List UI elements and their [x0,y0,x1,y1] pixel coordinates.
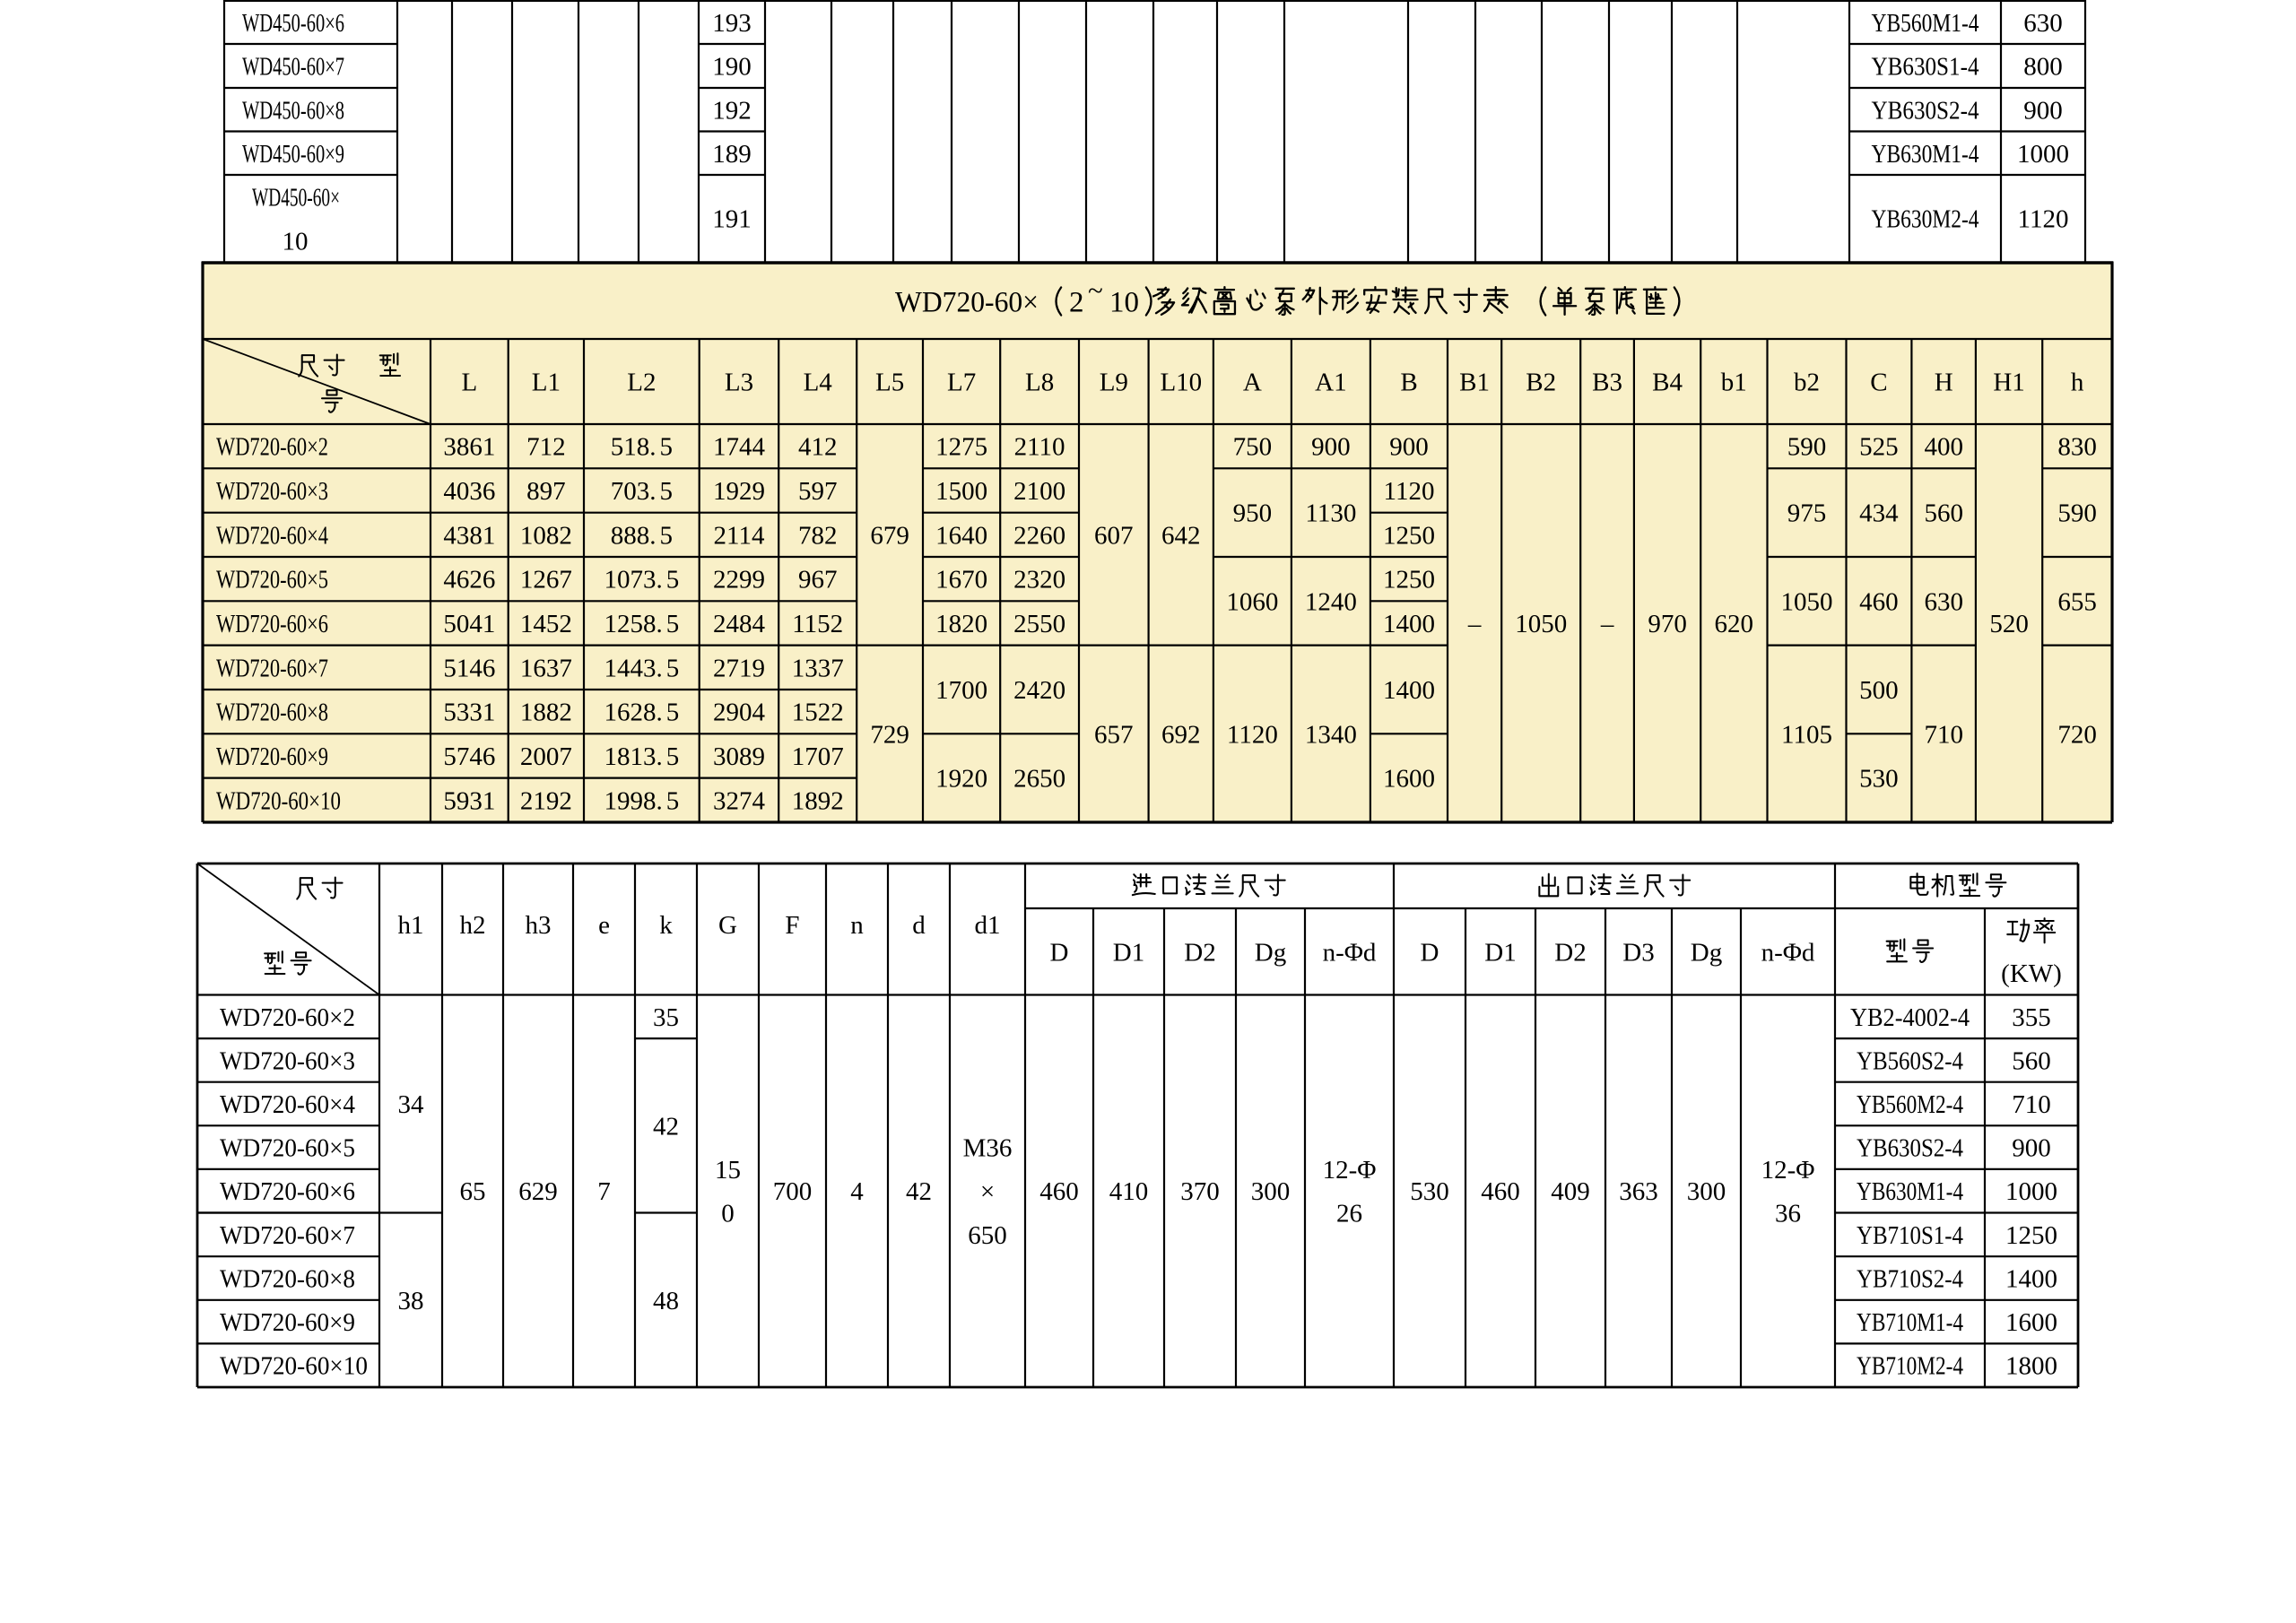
svg-text:1120: 1120 [1384,477,1435,506]
svg-text:L1: L1 [532,369,561,397]
svg-text:1060: 1060 [1226,587,1278,616]
svg-text:1120: 1120 [2018,205,2069,234]
svg-text:950: 950 [1233,499,1273,528]
svg-text:1670: 1670 [935,566,987,595]
svg-text:34: 34 [398,1090,425,1119]
svg-text:1522: 1522 [792,699,844,727]
svg-text:h: h [2071,369,2084,397]
svg-text:1707: 1707 [792,742,844,771]
svg-text:WD450-60×6: WD450-60×6 [242,9,344,38]
svg-text:WD720-60×3: WD720-60×3 [220,1046,355,1075]
svg-text:YB560M1-4: YB560M1-4 [1872,9,1979,38]
svg-text:WD450-60×7: WD450-60×7 [242,53,344,82]
svg-text:597: 597 [798,477,838,506]
svg-text:900: 900 [1389,433,1429,462]
svg-text:B2: B2 [1526,369,1556,397]
svg-text:1337: 1337 [792,654,844,682]
svg-text:35: 35 [653,1003,679,1032]
svg-text:530: 530 [1859,765,1899,794]
svg-text:2007: 2007 [520,742,572,771]
svg-text:2484: 2484 [713,610,766,638]
svg-text:d1: d1 [975,911,1001,940]
svg-text:1929: 1929 [713,477,765,506]
svg-text:C: C [1870,369,1887,397]
svg-text:1250: 1250 [1383,566,1435,595]
svg-text:2719: 2719 [713,654,765,682]
svg-text:L7: L7 [947,369,976,397]
svg-text:3274: 3274 [713,786,766,815]
svg-text:12-Φ: 12-Φ [1761,1156,1815,1185]
svg-text:1628.5: 1628.5 [604,699,680,727]
svg-text:4381: 4381 [443,521,495,550]
svg-text:h2: h2 [460,911,486,940]
svg-text:WD720-60×8: WD720-60×8 [216,699,328,727]
svg-text:42: 42 [906,1177,932,1206]
svg-text:L: L [462,369,478,397]
svg-text:1600: 1600 [2005,1308,2057,1337]
svg-text:n-Φd: n-Φd [1761,938,1815,967]
svg-text:1998.5: 1998.5 [604,786,680,815]
svg-text:D: D [1421,938,1439,967]
svg-text:2650: 2650 [1013,765,1065,794]
svg-text:WD720-60×4: WD720-60×4 [216,521,328,550]
svg-text:1920: 1920 [935,765,987,794]
svg-text:L2: L2 [627,369,656,397]
svg-text:970: 970 [1648,610,1687,638]
svg-text:YB710S2-4: YB710S2-4 [1857,1265,1963,1294]
svg-text:12-Φ: 12-Φ [1323,1156,1377,1185]
svg-text:WD450-60×: WD450-60× [252,184,340,213]
svg-text:n-Φd: n-Φd [1323,938,1377,967]
svg-text:YB630M1-4: YB630M1-4 [1857,1177,1963,1206]
svg-text:1400: 1400 [1383,676,1435,705]
svg-text:1267: 1267 [520,566,572,595]
svg-text:189: 189 [712,140,752,169]
svg-text:642: 642 [1161,521,1201,550]
svg-text:1882: 1882 [520,699,572,727]
svg-text:679: 679 [870,521,909,550]
svg-text:15: 15 [715,1156,741,1185]
svg-text:WD720-60×: WD720-60× [895,287,1039,319]
svg-text:3861: 3861 [443,433,495,462]
svg-text:B: B [1400,369,1417,397]
svg-text:42: 42 [653,1112,679,1141]
svg-text:(KW): (KW) [2001,959,2062,988]
svg-text:YB710S1-4: YB710S1-4 [1857,1221,1963,1250]
svg-text:WD720-60×8: WD720-60×8 [220,1265,355,1294]
svg-text:WD720-60×4: WD720-60×4 [220,1090,355,1119]
svg-text:1000: 1000 [2017,140,2069,169]
svg-text:657: 657 [1094,720,1134,749]
svg-text:3089: 3089 [713,742,765,771]
svg-text:630: 630 [2023,9,2063,38]
svg-text:629: 629 [518,1177,558,1206]
svg-text:d: d [912,911,926,940]
svg-text:D1: D1 [1484,938,1516,967]
svg-text:D2: D2 [1184,938,1215,967]
svg-text:WD720-60×6: WD720-60×6 [216,610,328,638]
svg-text:WD450-60×9: WD450-60×9 [242,140,344,169]
svg-text:2320: 2320 [1013,566,1065,595]
svg-text:193: 193 [712,9,752,38]
svg-text:WD720-60×2: WD720-60×2 [216,433,328,462]
svg-text:720: 720 [2057,720,2097,749]
svg-text:412: 412 [798,433,838,462]
svg-text:967: 967 [798,566,838,595]
svg-text:YB630S1-4: YB630S1-4 [1872,53,1979,82]
svg-text:1400: 1400 [1383,610,1435,638]
svg-text:1340: 1340 [1305,720,1357,749]
svg-text:WD720-60×10: WD720-60×10 [220,1352,368,1381]
svg-text:~: ~ [1088,274,1103,306]
svg-text:607: 607 [1094,521,1134,550]
svg-text:782: 782 [798,521,838,550]
svg-text:1258.5: 1258.5 [604,610,680,638]
svg-text:2299: 2299 [713,566,765,595]
svg-text:1744: 1744 [713,433,766,462]
svg-text:b2: b2 [1794,369,1820,397]
svg-text:460: 460 [1039,1177,1079,1206]
svg-text:1240: 1240 [1305,587,1357,616]
svg-text:H1: H1 [1993,369,2024,397]
svg-text:363: 363 [1619,1177,1658,1206]
svg-text:1700: 1700 [935,676,987,705]
svg-text:n: n [850,911,864,940]
svg-text:1637: 1637 [520,654,572,682]
svg-text:L3: L3 [725,369,753,397]
svg-text:B1: B1 [1459,369,1490,397]
svg-text:1105: 1105 [1781,720,1832,749]
svg-text:1050: 1050 [1781,587,1833,616]
svg-text:192: 192 [712,96,752,125]
svg-text:h1: h1 [398,911,424,940]
svg-text:500: 500 [1859,676,1899,705]
svg-text:525: 525 [1859,433,1899,462]
svg-text:191: 191 [712,205,752,234]
svg-text:1892: 1892 [792,786,844,815]
svg-text:L4: L4 [804,369,833,397]
svg-text:D2: D2 [1554,938,1586,967]
svg-text:370: 370 [1180,1177,1220,1206]
svg-text:G: G [718,911,737,940]
svg-text:YB630S2-4: YB630S2-4 [1857,1134,1963,1163]
svg-text:L8: L8 [1025,369,1054,397]
svg-text:1400: 1400 [2005,1265,2057,1294]
svg-text:WD720-60×7: WD720-60×7 [220,1221,355,1250]
svg-text:800: 800 [2023,53,2063,82]
svg-text:YB710M2-4: YB710M2-4 [1857,1352,1963,1381]
svg-text:1275: 1275 [935,433,987,462]
svg-text:460: 460 [1481,1177,1520,1206]
svg-text:1600: 1600 [1383,765,1435,794]
svg-text:2904: 2904 [713,699,766,727]
svg-text:888.5: 888.5 [611,521,673,550]
svg-text:YB630M1-4: YB630M1-4 [1872,140,1979,169]
svg-text:5331: 5331 [443,699,495,727]
svg-text:2260: 2260 [1013,521,1065,550]
svg-text:WD720-60×2: WD720-60×2 [220,1003,355,1032]
svg-text:WD720-60×9: WD720-60×9 [220,1308,355,1337]
svg-text:WD720-60×6: WD720-60×6 [220,1177,355,1206]
svg-text:1813.5: 1813.5 [604,742,680,771]
svg-text:2: 2 [1069,287,1084,319]
svg-text:300: 300 [1687,1177,1726,1206]
svg-text:2550: 2550 [1013,610,1065,638]
svg-text:26: 26 [1336,1200,1362,1228]
svg-text:Dg: Dg [1691,938,1722,967]
svg-text:460: 460 [1859,587,1899,616]
svg-text:1452: 1452 [520,610,572,638]
svg-text:A1: A1 [1315,369,1346,397]
svg-text:WD720-60×9: WD720-60×9 [216,742,328,771]
svg-text:1152: 1152 [792,610,843,638]
svg-text:A: A [1243,369,1262,397]
svg-text:692: 692 [1161,720,1201,749]
svg-text:5041: 5041 [443,610,495,638]
svg-text:630: 630 [1924,587,1963,616]
svg-text:400: 400 [1924,433,1963,462]
svg-text:k: k [659,911,673,940]
svg-text:4036: 4036 [443,477,495,506]
svg-text:700: 700 [773,1177,813,1206]
svg-text:YB630S2-4: YB630S2-4 [1872,96,1979,125]
svg-text:975: 975 [1787,499,1827,528]
svg-text:620: 620 [1715,610,1754,638]
svg-text:897: 897 [526,477,566,506]
svg-text:1082: 1082 [520,521,572,550]
svg-text:1250: 1250 [1383,521,1435,550]
svg-text:WD720-60×7: WD720-60×7 [216,654,328,682]
svg-text:1443.5: 1443.5 [604,654,680,682]
svg-text:1120: 1120 [1227,720,1278,749]
svg-text:B3: B3 [1592,369,1622,397]
svg-text:65: 65 [460,1177,486,1206]
svg-text:4626: 4626 [443,566,495,595]
svg-text:900: 900 [2012,1134,2051,1163]
svg-text:729: 729 [870,720,909,749]
svg-text:e: e [598,911,610,940]
svg-text:410: 410 [1109,1177,1149,1206]
svg-text:900: 900 [2023,96,2063,125]
svg-text:YB630M2-4: YB630M2-4 [1872,205,1979,234]
svg-text:1050: 1050 [1515,610,1567,638]
svg-text:D1: D1 [1113,938,1144,967]
svg-text:YB2-4002-4: YB2-4002-4 [1850,1003,1970,1032]
svg-text:YB560M2-4: YB560M2-4 [1857,1090,1963,1119]
svg-text:1800: 1800 [2005,1352,2057,1381]
svg-text:F: F [785,911,799,940]
svg-text:2114: 2114 [714,521,765,550]
svg-text:409: 409 [1551,1177,1590,1206]
svg-text:L5: L5 [875,369,904,397]
svg-text:300: 300 [1251,1177,1291,1206]
svg-text:590: 590 [1787,433,1827,462]
svg-text:655: 655 [2057,587,2097,616]
svg-text:48: 48 [653,1287,679,1315]
svg-text:434: 434 [1859,499,1899,528]
svg-text:–: – [1467,610,1482,638]
svg-text:560: 560 [2012,1046,2051,1075]
svg-text:WD720-60×5: WD720-60×5 [220,1134,355,1163]
svg-text:D3: D3 [1622,938,1654,967]
svg-text:2420: 2420 [1013,676,1065,705]
svg-text:36: 36 [1775,1200,1801,1228]
svg-text:×: × [980,1177,995,1206]
svg-text:5746: 5746 [443,742,495,771]
svg-text:5146: 5146 [443,654,495,682]
svg-text:750: 750 [1233,433,1273,462]
svg-text:7: 7 [597,1177,611,1206]
svg-text:B4: B4 [1652,369,1683,397]
svg-text:2110: 2110 [1014,433,1065,462]
svg-text:830: 830 [2057,433,2097,462]
svg-text:WD450-60×8: WD450-60×8 [242,96,344,125]
svg-text:WD720-60×5: WD720-60×5 [216,566,328,595]
svg-text:1000: 1000 [2005,1177,2057,1206]
svg-text:1640: 1640 [935,521,987,550]
svg-text:650: 650 [968,1221,1007,1250]
svg-text:703.5: 703.5 [611,477,673,506]
svg-text:M36: M36 [963,1134,1013,1163]
svg-text:WD720-60×10: WD720-60×10 [216,786,341,815]
svg-text:H: H [1935,369,1953,397]
svg-text:10: 10 [283,228,309,256]
svg-text:590: 590 [2057,499,2097,528]
svg-text:2100: 2100 [1013,477,1065,506]
svg-text:L9: L9 [1100,369,1128,397]
svg-text:530: 530 [1410,1177,1449,1206]
svg-text:520: 520 [1989,610,2029,638]
svg-text:5931: 5931 [443,786,495,815]
svg-text:712: 712 [526,433,566,462]
svg-text:355: 355 [2012,1003,2051,1032]
svg-text:–: – [1600,610,1614,638]
svg-text:10: 10 [1109,287,1139,319]
svg-text:710: 710 [1924,720,1963,749]
svg-text:1250: 1250 [2005,1221,2057,1250]
svg-text:0: 0 [721,1200,735,1228]
svg-text:L10: L10 [1160,369,1202,397]
svg-text:560: 560 [1924,499,1963,528]
svg-text:D: D [1050,938,1069,967]
svg-text:518.5: 518.5 [611,433,673,462]
svg-text:WD720-60×3: WD720-60×3 [216,477,328,506]
svg-text:Dg: Dg [1255,938,1286,967]
svg-text:2192: 2192 [520,786,572,815]
svg-text:1130: 1130 [1305,499,1356,528]
svg-text:1073.5: 1073.5 [604,566,680,595]
svg-text:710: 710 [2012,1090,2051,1119]
svg-text:900: 900 [1311,433,1351,462]
svg-text:h3: h3 [526,911,552,940]
svg-text:YB710M1-4: YB710M1-4 [1857,1308,1963,1337]
svg-text:4: 4 [850,1177,864,1206]
svg-text:190: 190 [712,53,752,82]
svg-text:38: 38 [398,1287,424,1315]
svg-text:1500: 1500 [935,477,987,506]
svg-text:b1: b1 [1721,369,1747,397]
svg-text:1820: 1820 [935,610,987,638]
svg-text:YB560S2-4: YB560S2-4 [1857,1046,1963,1075]
